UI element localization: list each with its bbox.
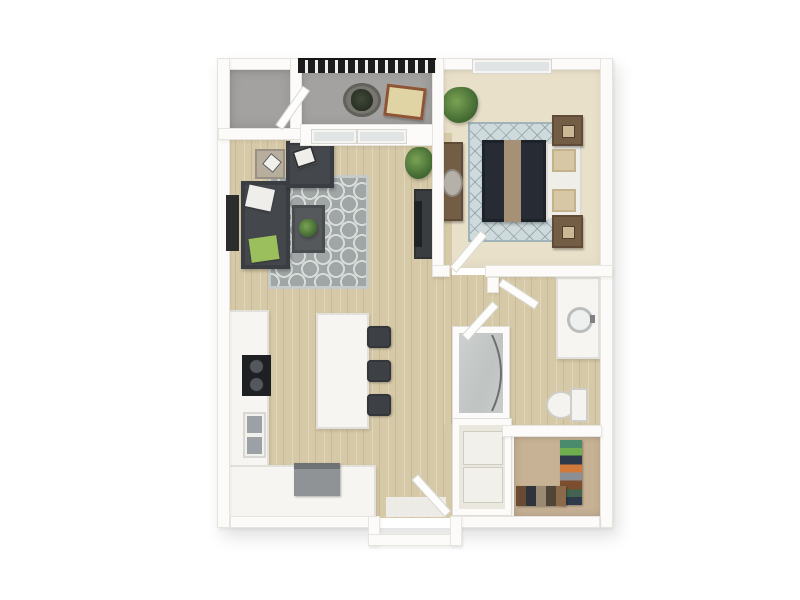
bed-runner: [504, 140, 521, 222]
dresser-mirror: [442, 169, 463, 197]
tv-screen: [414, 201, 422, 247]
vanity-faucet: [590, 315, 595, 323]
wall-bottom-left: [230, 516, 378, 528]
living-window-2: [358, 130, 406, 143]
bedroom-window: [473, 60, 551, 73]
sofa-pillow-green: [248, 235, 279, 263]
wall-hall-stub: [487, 277, 499, 293]
floorplan-image: [0, 0, 800, 600]
nightstand-bottom: [552, 215, 583, 248]
wall-bedroom-bottom-b: [485, 265, 613, 277]
sink-basin-bottom: [247, 437, 262, 454]
wall-storage-bottom: [218, 128, 302, 140]
wall-bottom-right: [452, 516, 600, 528]
entry-notch-right: [450, 516, 462, 546]
bathroom-vanity: [556, 277, 600, 359]
wall-bedroom-bottom-a: [432, 265, 450, 277]
closet-shoes-row: [516, 486, 566, 506]
stove: [242, 355, 271, 396]
wall-closet-top: [502, 425, 602, 437]
laundry-shelf-bottom: [463, 467, 503, 503]
nightstand-top: [552, 115, 583, 146]
bed-pillow-1: [552, 149, 576, 172]
countertop-appliance: [294, 463, 340, 496]
sink-basin-top: [247, 416, 262, 433]
lounge-mat: [383, 84, 427, 121]
entry-notch-bottom: [368, 534, 462, 546]
kitchen-island: [316, 313, 369, 429]
bed-pillow-2: [552, 189, 576, 212]
shower-glass-door: [488, 333, 510, 413]
bar-stool-3: [367, 394, 391, 416]
balcony-railing: [298, 58, 436, 73]
wall-right: [600, 58, 613, 528]
wall-tv: [226, 195, 239, 251]
planter-foliage: [351, 89, 373, 111]
living-window-1: [312, 130, 356, 143]
apartment-plan: [215, 55, 615, 547]
bar-stool-2: [367, 360, 391, 382]
lamp-top: [562, 125, 575, 138]
toilet-tank: [570, 388, 588, 422]
bar-stool-1: [367, 326, 391, 348]
wall-bedroom-left: [432, 58, 444, 277]
laundry-shelf-top: [463, 431, 503, 465]
shower: [452, 326, 510, 420]
lamp-bottom: [562, 226, 575, 239]
kitchen-sink: [243, 412, 266, 458]
